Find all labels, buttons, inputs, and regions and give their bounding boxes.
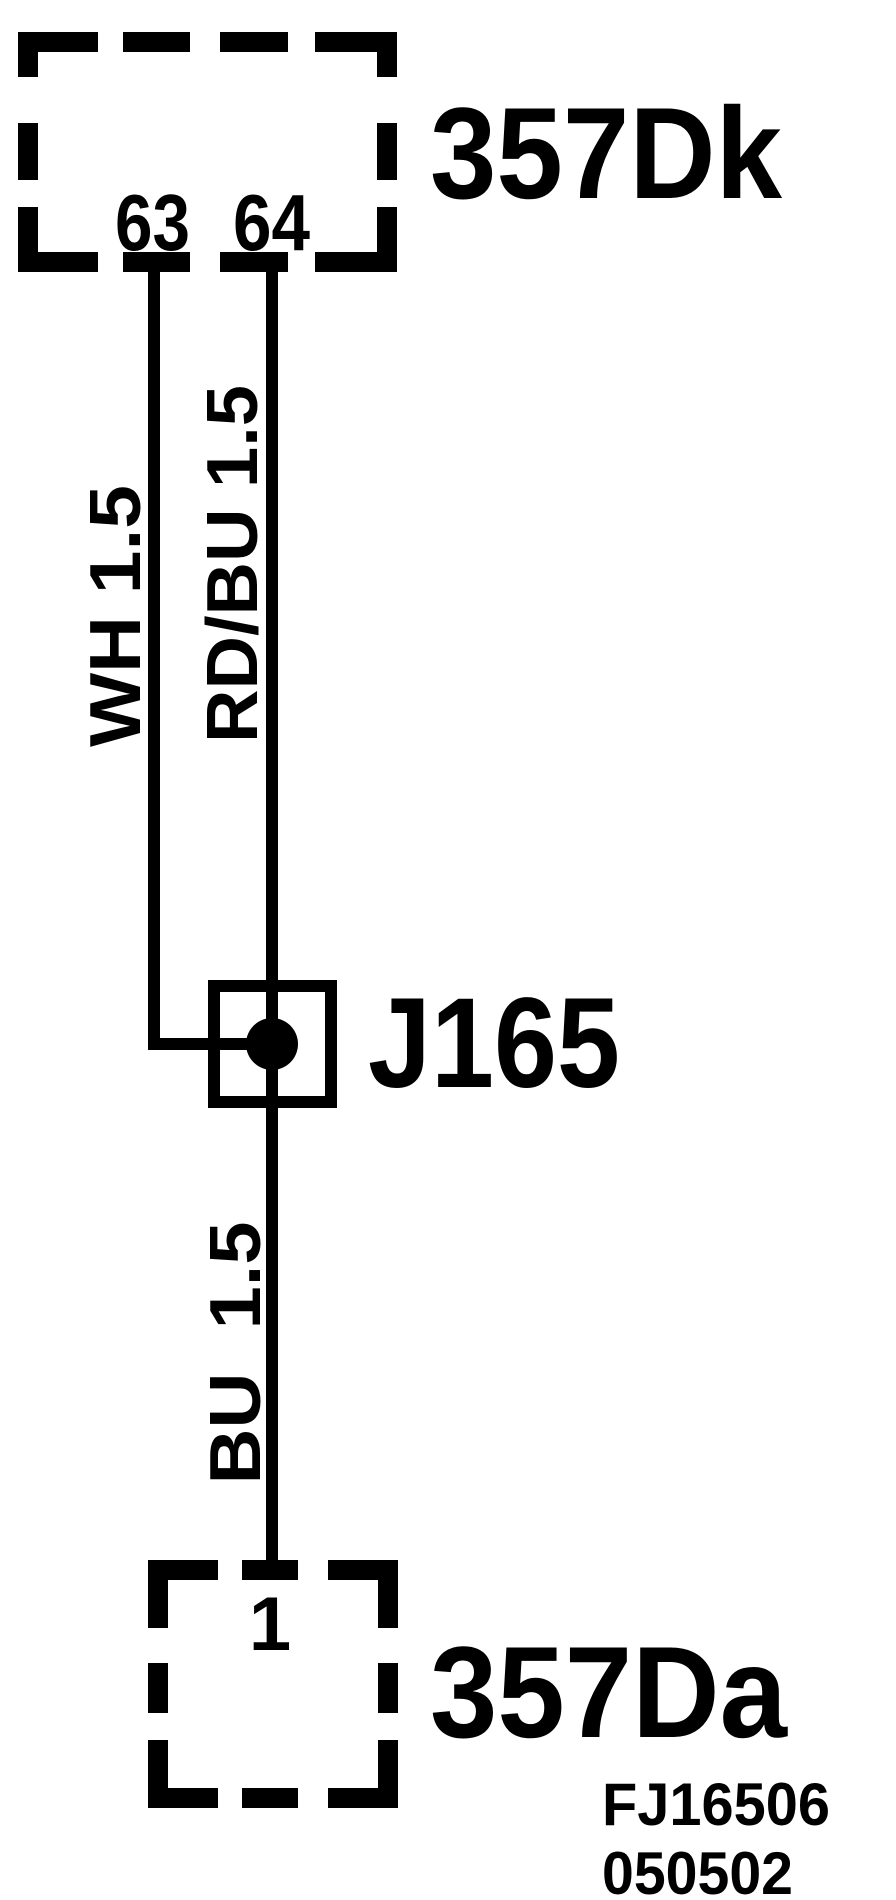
wiring-diagram: 63 64 357Dk WH 1.5 RD/BU 1.5 BU 1.5 J165… [0, 0, 896, 1900]
wire-rdbu-label: RD/BU 1.5 [193, 385, 273, 743]
junction-j165-label: J165 [368, 972, 620, 1115]
connector-357Dk-label: 357Dk [430, 80, 783, 226]
pin-1-label: 1 [249, 1582, 291, 1667]
wire-bu-label: BU 1.5 [196, 1222, 276, 1485]
pin-63-label: 63 [115, 178, 190, 267]
figure-number: FJ16506 [602, 1771, 830, 1838]
junction-j165-dot [246, 1018, 298, 1070]
connector-357Dk-box [18, 32, 397, 272]
wire-wh-label: WH 1.5 [76, 485, 156, 747]
date-code: 050502 [602, 1840, 793, 1900]
pin-64-label: 64 [233, 178, 310, 267]
connector-357Da-label: 357Da [430, 1619, 789, 1765]
wiring-diagram-page: 63 64 357Dk WH 1.5 RD/BU 1.5 BU 1.5 J165… [0, 0, 896, 1900]
